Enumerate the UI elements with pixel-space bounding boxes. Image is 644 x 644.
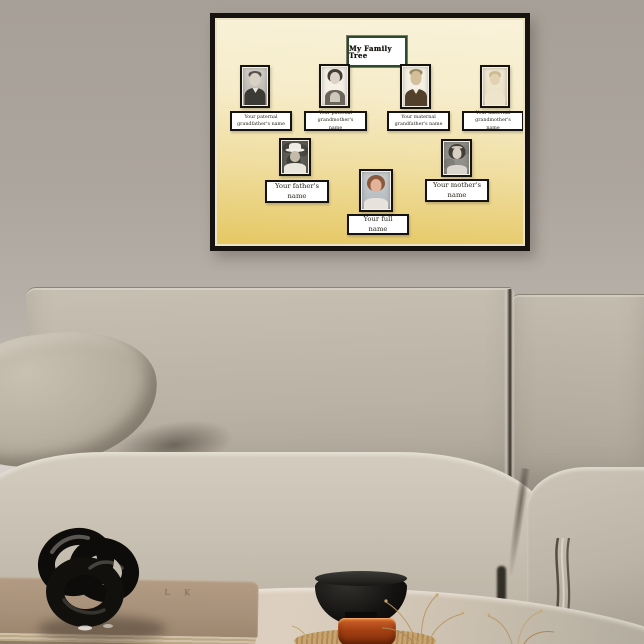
poster-title-box: My Family Tree (347, 36, 407, 67)
black-bowl-rim (315, 571, 407, 586)
label-paternal-grandmother: Your paternal grandmother's name (304, 111, 367, 131)
child-photo (359, 169, 393, 212)
portrait (282, 141, 308, 173)
label-maternal-grandmother: Your maternal grandmother's name (462, 111, 523, 131)
label-paternal-grandfather: Your paternal grandfather's name (230, 111, 292, 131)
portrait-torso (405, 89, 427, 106)
picture-frame: My Family Tree (210, 13, 530, 251)
paternal-grandfather-photo (240, 65, 270, 108)
portrait-torso (485, 91, 505, 105)
label-mother: Your mother's name (425, 179, 489, 202)
portrait-torso (364, 198, 388, 209)
poster-title: My Family Tree (349, 45, 405, 59)
mother-photo (441, 139, 472, 177)
portrait-face (290, 151, 300, 162)
portrait-torso (325, 90, 345, 105)
label-text: Your full name (361, 215, 395, 234)
family-tree-poster: My Family Tree (217, 20, 523, 244)
label-text: Your paternal grandmother's name (312, 110, 360, 132)
label-full-name: Your full name (347, 214, 409, 235)
label-text: Your paternal grandfather's name (237, 114, 285, 129)
label-text: Your maternal grandmother's name (469, 110, 517, 132)
portrait-face (410, 71, 421, 85)
portrait-face (452, 148, 461, 159)
paternal-grandmother-photo (319, 64, 350, 108)
dried-grass (290, 588, 580, 644)
portrait (243, 68, 267, 105)
couch-backrest-seam (504, 289, 515, 489)
book-embossed-title: L K (164, 588, 196, 598)
portrait-face (250, 73, 261, 86)
portrait (444, 142, 469, 174)
portrait (403, 67, 428, 106)
portrait-face (371, 179, 382, 192)
portrait-torso (447, 165, 467, 174)
portrait-face (330, 72, 340, 84)
maternal-grandfather-photo (400, 64, 431, 109)
portrait (362, 172, 390, 209)
knot-sculpture (30, 518, 150, 640)
label-father: Your father's name (265, 180, 329, 203)
portrait-face (490, 74, 500, 85)
portrait (483, 68, 507, 105)
living-room-scene: My Family Tree (0, 0, 644, 644)
portrait-torso (245, 88, 266, 105)
label-text: Your mother's name (432, 181, 482, 200)
father-photo (279, 138, 311, 176)
label-maternal-grandfather: Your maternal grandfather's name (387, 111, 450, 131)
portrait-torso (284, 163, 306, 173)
label-text: Your maternal grandfather's name (395, 114, 443, 129)
label-text: Your father's name (272, 182, 322, 201)
portrait (322, 67, 347, 105)
maternal-grandmother-photo (480, 65, 510, 108)
